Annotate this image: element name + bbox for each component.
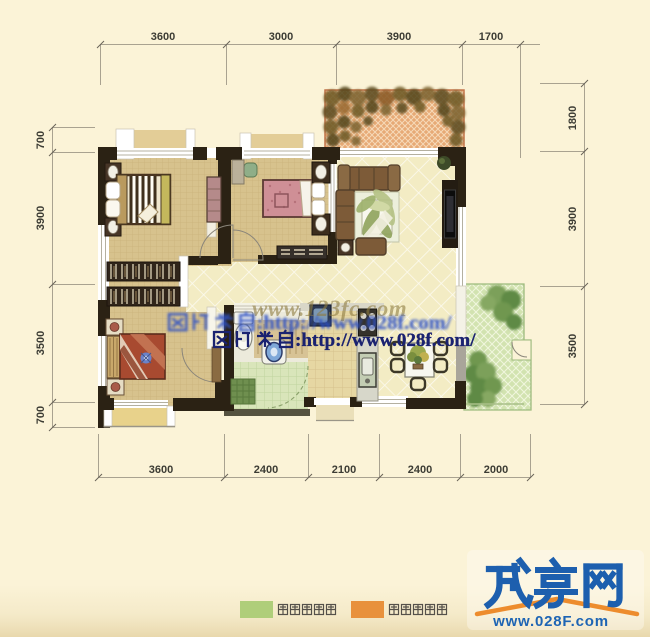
svg-text:700: 700 <box>35 131 47 149</box>
svg-text:2000: 2000 <box>484 464 508 476</box>
svg-text:2400: 2400 <box>408 464 432 476</box>
svg-text:3500: 3500 <box>35 331 47 355</box>
svg-text:3900: 3900 <box>387 31 411 43</box>
svg-text:3500: 3500 <box>567 334 579 358</box>
svg-text:3600: 3600 <box>151 31 175 43</box>
svg-text:2100: 2100 <box>332 464 356 476</box>
svg-text:1800: 1800 <box>567 106 579 130</box>
svg-text:3000: 3000 <box>269 31 293 43</box>
svg-text:3600: 3600 <box>149 464 173 476</box>
svg-text:www.028F.com: www.028F.com <box>492 613 609 630</box>
svg-text:1700: 1700 <box>479 31 503 43</box>
svg-text:700: 700 <box>35 406 47 424</box>
svg-text:3900: 3900 <box>567 207 579 231</box>
svg-text:3900: 3900 <box>35 206 47 230</box>
svg-text:2400: 2400 <box>254 464 278 476</box>
